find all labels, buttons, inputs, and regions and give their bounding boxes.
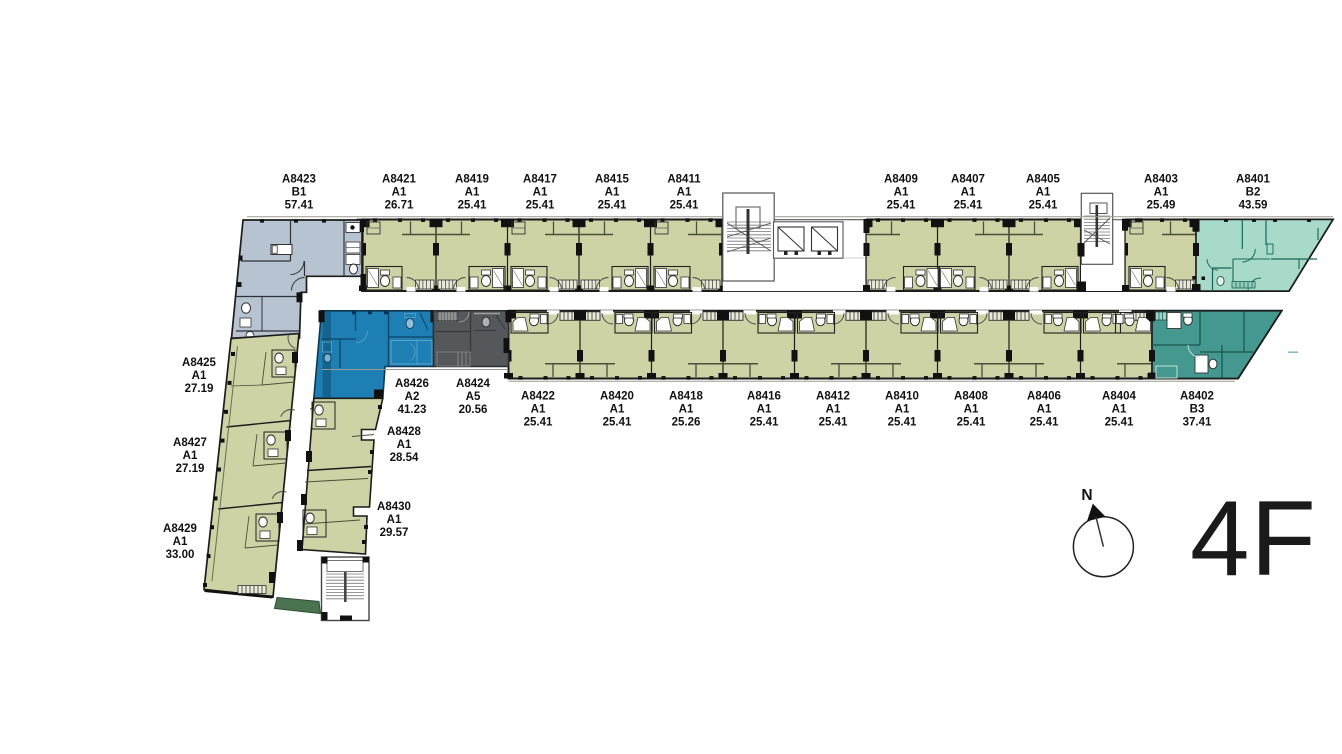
svg-text:25.41: 25.41 (1105, 417, 1134, 429)
svg-text:25.41: 25.41 (1029, 200, 1058, 212)
svg-text:43.59: 43.59 (1239, 200, 1268, 212)
svg-text:A8425: A8425 (182, 357, 216, 369)
svg-text:A1: A1 (894, 187, 909, 199)
svg-text:20.56: 20.56 (459, 404, 488, 416)
svg-text:25.41: 25.41 (598, 200, 627, 212)
svg-text:A1: A1 (1112, 404, 1127, 416)
svg-text:28.54: 28.54 (390, 452, 419, 464)
svg-text:25.41: 25.41 (603, 417, 632, 429)
svg-text:25.26: 25.26 (672, 417, 701, 429)
svg-text:25.41: 25.41 (888, 417, 917, 429)
svg-text:A1: A1 (465, 187, 480, 199)
svg-text:A8401: A8401 (1236, 174, 1270, 186)
svg-text:25.41: 25.41 (957, 417, 986, 429)
svg-text:25.41: 25.41 (458, 200, 487, 212)
svg-text:B1: B1 (292, 187, 307, 199)
svg-text:A1: A1 (964, 404, 979, 416)
svg-text:A8406: A8406 (1027, 391, 1061, 403)
svg-text:A1: A1 (531, 404, 546, 416)
svg-text:A1: A1 (173, 536, 188, 548)
svg-text:A1: A1 (533, 187, 548, 199)
svg-text:A8409: A8409 (884, 174, 918, 186)
svg-text:25.41: 25.41 (954, 200, 983, 212)
svg-text:A8427: A8427 (173, 437, 207, 449)
svg-text:A8426: A8426 (395, 378, 429, 390)
svg-text:A8417: A8417 (523, 174, 557, 186)
svg-text:A8421: A8421 (382, 174, 416, 186)
svg-text:A1: A1 (392, 187, 407, 199)
svg-text:A8420: A8420 (600, 391, 634, 403)
svg-text:25.41: 25.41 (1030, 417, 1059, 429)
svg-text:A5: A5 (466, 391, 481, 403)
svg-text:A8430: A8430 (377, 501, 411, 513)
svg-text:A8402: A8402 (1180, 391, 1214, 403)
svg-text:A8408: A8408 (954, 391, 988, 403)
svg-text:A1: A1 (1154, 187, 1169, 199)
svg-text:A1: A1 (895, 404, 910, 416)
svg-text:B3: B3 (1190, 404, 1205, 416)
svg-text:A1: A1 (961, 187, 976, 199)
svg-text:B2: B2 (1246, 187, 1261, 199)
svg-text:33.00: 33.00 (166, 549, 195, 561)
svg-text:A8415: A8415 (595, 174, 629, 186)
svg-text:A8422: A8422 (521, 391, 555, 403)
svg-text:A8418: A8418 (669, 391, 703, 403)
svg-text:A1: A1 (1036, 187, 1051, 199)
svg-text:A8412: A8412 (816, 391, 850, 403)
svg-text:27.19: 27.19 (176, 463, 205, 475)
svg-text:A8419: A8419 (455, 174, 489, 186)
svg-text:29.57: 29.57 (380, 527, 409, 539)
svg-text:A8410: A8410 (885, 391, 919, 403)
svg-text:25.41: 25.41 (670, 200, 699, 212)
svg-text:A1: A1 (397, 439, 412, 451)
svg-text:25.41: 25.41 (887, 200, 916, 212)
svg-text:A1: A1 (192, 370, 207, 382)
svg-text:A1: A1 (826, 404, 841, 416)
svg-text:25.49: 25.49 (1147, 200, 1176, 212)
svg-text:A1: A1 (610, 404, 625, 416)
svg-text:A1: A1 (757, 404, 772, 416)
svg-text:25.41: 25.41 (526, 200, 555, 212)
svg-text:A8429: A8429 (163, 523, 197, 535)
svg-text:A8428: A8428 (387, 426, 421, 438)
svg-text:25.41: 25.41 (750, 417, 779, 429)
svg-text:A8404: A8404 (1102, 391, 1136, 403)
svg-text:A1: A1 (679, 404, 694, 416)
svg-text:A1: A1 (1037, 404, 1052, 416)
svg-text:A1: A1 (677, 187, 692, 199)
svg-text:A8423: A8423 (282, 174, 316, 186)
svg-text:25.41: 25.41 (524, 417, 553, 429)
svg-text:A1: A1 (605, 187, 620, 199)
svg-text:41.23: 41.23 (398, 404, 427, 416)
svg-text:37.41: 37.41 (1183, 417, 1212, 429)
svg-text:26.71: 26.71 (385, 200, 414, 212)
svg-text:A2: A2 (405, 391, 420, 403)
svg-text:25.41: 25.41 (819, 417, 848, 429)
svg-text:27.19: 27.19 (185, 383, 214, 395)
svg-text:A1: A1 (183, 450, 198, 462)
svg-text:57.41: 57.41 (285, 200, 314, 212)
svg-text:A8403: A8403 (1144, 174, 1178, 186)
svg-text:A8411: A8411 (667, 174, 701, 186)
svg-text:A1: A1 (387, 514, 402, 526)
svg-text:A8407: A8407 (951, 174, 985, 186)
svg-text:A8405: A8405 (1026, 174, 1060, 186)
svg-text:A8416: A8416 (747, 391, 781, 403)
svg-text:N: N (1081, 487, 1092, 504)
svg-text:A8424: A8424 (456, 378, 490, 390)
